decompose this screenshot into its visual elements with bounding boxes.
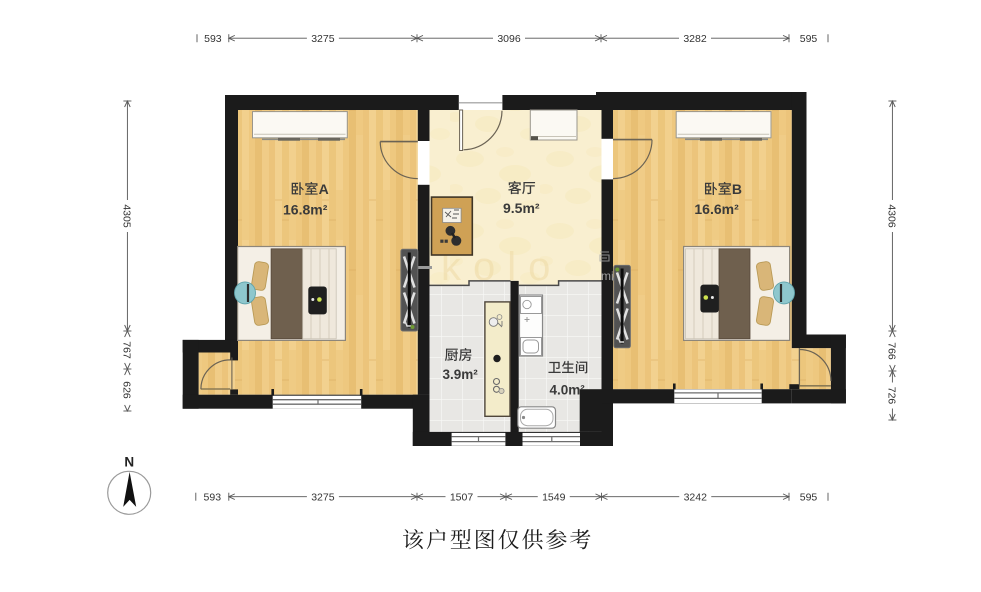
- svg-text:595: 595: [800, 33, 818, 45]
- svg-text:16.8m²: 16.8m²: [283, 202, 328, 218]
- svg-text:3242: 3242: [684, 491, 708, 503]
- svg-text:mi: mi: [601, 269, 614, 283]
- svg-text:4306: 4306: [886, 204, 898, 228]
- svg-text:593: 593: [204, 33, 222, 45]
- svg-text:9.5m²: 9.5m²: [503, 200, 540, 216]
- svg-text:766: 766: [886, 342, 898, 360]
- svg-text:B: B: [732, 181, 742, 197]
- svg-text:726: 726: [886, 387, 898, 405]
- svg-text:N: N: [124, 455, 134, 470]
- svg-text:3275: 3275: [311, 33, 335, 45]
- svg-text:1507: 1507: [450, 491, 474, 503]
- svg-text:4305: 4305: [121, 204, 133, 228]
- svg-text:16.6m²: 16.6m²: [694, 201, 739, 217]
- svg-text:593: 593: [204, 491, 222, 503]
- svg-text:3.9m²: 3.9m²: [443, 367, 479, 382]
- svg-text:3282: 3282: [683, 33, 707, 45]
- svg-text:595: 595: [800, 491, 818, 503]
- svg-text:3275: 3275: [311, 491, 335, 503]
- svg-text:3096: 3096: [497, 33, 521, 45]
- svg-text:4.0m²: 4.0m²: [550, 382, 586, 397]
- svg-text:A: A: [319, 181, 329, 197]
- svg-text:1549: 1549: [542, 491, 566, 503]
- svg-text:626: 626: [121, 381, 133, 399]
- svg-text:767: 767: [121, 341, 133, 359]
